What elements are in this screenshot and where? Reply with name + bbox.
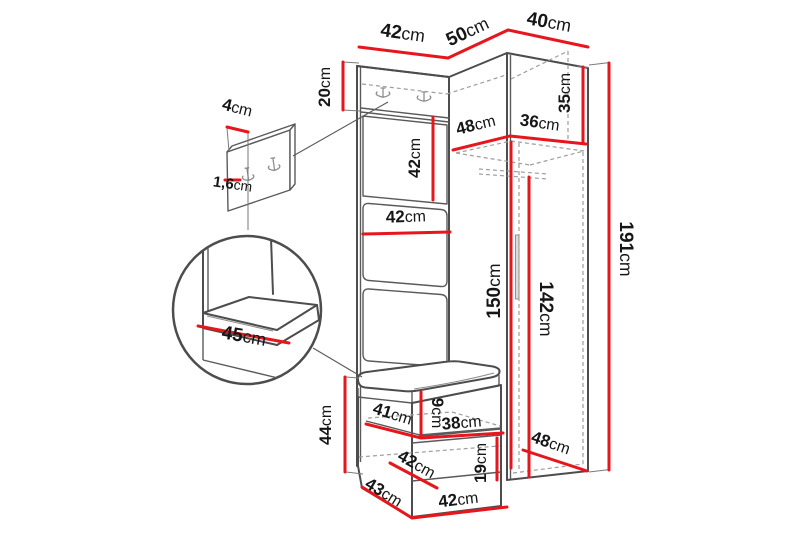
dim-total-height: 191cm (615, 221, 636, 276)
magnifier-circle (173, 236, 321, 384)
dim-mirror-panel-height: 42cm (405, 138, 424, 178)
diagram-canvas: 42cm 50cm 40cm 20cm 4cm 1,6cm 42cm 42cm … (0, 0, 800, 533)
dim-hook-panel-height: 20cm (315, 67, 334, 107)
dim-bench-shelf-width: 38cm (441, 411, 482, 433)
dim-bench-lower-compartment-height: 19cm (471, 443, 490, 483)
dim-interior-height-back: 142cm (535, 281, 556, 336)
furniture-dimension-diagram: 42cm 50cm 40cm 20cm 4cm 1,6cm 42cm 42cm … (0, 0, 800, 533)
dim-bench-height: 44cm (316, 405, 335, 445)
dim-top-compartment-height: 35cm (555, 73, 574, 113)
dim-interior-height-front: 150cm (484, 263, 505, 318)
dim-panel-width-middle: 42cm (385, 206, 426, 226)
